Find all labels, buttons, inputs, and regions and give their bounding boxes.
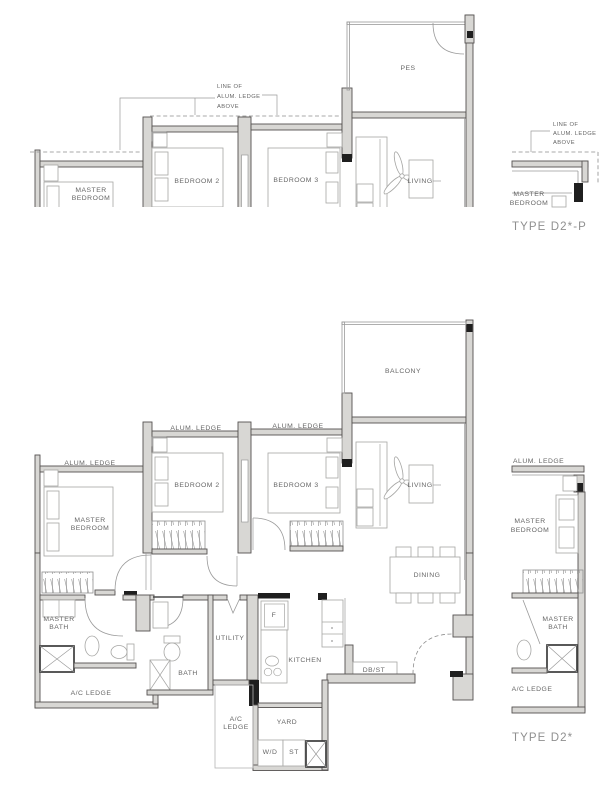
bath [147, 595, 213, 695]
room-label-fridge: F [272, 612, 277, 619]
floor-plan-type-d2p: LINE OF ALUM. LEDGE ABOVE PES MASTER BED… [30, 15, 474, 251]
room-label-living: LIVING [407, 482, 432, 489]
floor-plan-sheet: LINE OF ALUM. LEDGE ABOVE PES MASTER BED… [0, 0, 611, 805]
mini-room-label-ac-ledge: A/C LEDGE [512, 686, 553, 693]
mini-ledge-note-line2: ALUM. LEDGE [553, 131, 596, 137]
utility [213, 595, 259, 706]
alum-ledge-label: ALUM. LEDGE [170, 425, 221, 432]
kitchen [258, 593, 353, 708]
room-label-ac-ledge: A/C LEDGE [71, 690, 112, 697]
bed2-wardrobe-icon [152, 521, 205, 549]
room-label-ac-ledge: LEDGE [223, 724, 249, 731]
room-label-master-bedroom: MASTER [75, 187, 106, 194]
floor-plan-canvas: LINE OF ALUM. LEDGE ABOVE PES MASTER BED… [0, 0, 611, 805]
room-label-pes: PES [400, 65, 415, 72]
mini-room-label-master-bath: MASTER [542, 616, 573, 623]
room-label-master-bedroom: BEDROOM [71, 525, 110, 532]
alum-ledge-label: ALUM. LEDGE [272, 423, 323, 430]
room-label-ac-ledge: A/C [230, 716, 243, 723]
entry-wall-jog [453, 615, 473, 637]
room-label-master-bath: BATH [49, 624, 69, 631]
mini-wardrobe-icon [523, 570, 583, 593]
master-bath-door-arc [85, 598, 123, 636]
mini-ledge-note-line3: ABOVE [553, 140, 575, 146]
bed2-wall [152, 549, 207, 554]
room-label-bedroom3: BEDROOM 3 [273, 177, 318, 184]
room-label-master-bath: MASTER [43, 616, 74, 623]
ledge-note-line3: ABOVE [217, 104, 239, 110]
floor-plan-type-d2: ALUM. LEDGE ALUM. LEDGE ALUM. LEDGE BALC… [35, 320, 473, 771]
type-label-d2p: TYPE D2*-P [512, 221, 587, 233]
right-exterior-wall [466, 553, 473, 615]
room-label-utility: UTILITY [216, 635, 245, 642]
entry-door-leaf [450, 671, 463, 677]
master-wardrobe-icon [42, 572, 93, 593]
room-label-bedroom2: BEDROOM 2 [174, 482, 219, 489]
pes-gate-arc [433, 23, 464, 54]
mini-bed-icon [552, 196, 566, 207]
mini-room-label-master-bath: BATH [548, 624, 568, 631]
toilet-icon [111, 644, 134, 660]
room-label-balcony: BALCONY [385, 368, 421, 375]
sink-icon [85, 636, 99, 656]
room-label-dining: DINING [414, 572, 441, 579]
mini-alum-ledge-label: ALUM. LEDGE [513, 458, 564, 465]
master-door-wall [95, 590, 115, 595]
master-bath [40, 595, 150, 672]
bed3-wardrobe-icon [290, 521, 343, 546]
balcony [342, 322, 466, 393]
bifold-door-icon [227, 598, 240, 613]
entry-door-arc [413, 634, 453, 674]
type-label-d2: TYPE D2* [512, 732, 573, 744]
room-label-bedroom3: BEDROOM 3 [273, 482, 318, 489]
mini-room-label-master-bedroom: MASTER [513, 191, 544, 198]
vanity-icon [153, 602, 168, 628]
ledge-note-line1: LINE OF [217, 84, 242, 90]
bed3-door-arc [253, 518, 285, 550]
mini-plan-d2: ALUM. LEDGE MASTER BEDROOM MASTER BATH A… [511, 458, 585, 744]
mini-note-leader [531, 131, 550, 152]
alum-ledge-label: ALUM. LEDGE [64, 460, 115, 467]
bed2-door-arc [207, 556, 237, 586]
mini-plan-d2p: LINE OF ALUM. LEDGE ABOVE MASTER BEDROOM… [510, 122, 598, 233]
mini-room-label-master-bedroom: BEDROOM [510, 200, 549, 207]
room-label-st: ST [289, 749, 299, 756]
mini-ledge-note-line1: LINE OF [553, 122, 578, 128]
left-exterior-wall [35, 553, 40, 708]
hall-thin-wall [146, 553, 151, 590]
mini-sink-icon [517, 640, 531, 660]
sink-counter [322, 600, 343, 647]
mini-door-leaf [523, 600, 540, 644]
mini-right-wall [578, 492, 585, 711]
room-label-bath: BATH [178, 670, 198, 677]
pes-terrace [347, 15, 474, 90]
room-label-master-bedroom: MASTER [74, 517, 105, 524]
ledge-note-line2: ALUM. LEDGE [217, 94, 260, 100]
room-label-yard: YARD [277, 719, 297, 726]
bottom-left-wall [35, 702, 158, 708]
room-label-living: LIVING [407, 178, 432, 185]
mini-cabinet-icon [563, 476, 577, 491]
mini-bed-icon [556, 495, 578, 553]
bed3-wall [290, 546, 343, 551]
mini-room-label-master-bedroom: MASTER [514, 518, 545, 525]
room-label-wd: W/D [263, 749, 278, 756]
mini-room-label-master-bedroom: BEDROOM [511, 527, 550, 534]
right-exterior-wall [466, 637, 473, 679]
toilet-icon [164, 636, 180, 661]
room-label-master-bedroom: BEDROOM [72, 195, 111, 202]
room-label-db-st: DB/ST [363, 667, 386, 674]
room-label-bedroom2: BEDROOM 2 [174, 178, 219, 185]
master-door-arc [115, 555, 151, 591]
room-label-kitchen: KITCHEN [288, 657, 321, 664]
